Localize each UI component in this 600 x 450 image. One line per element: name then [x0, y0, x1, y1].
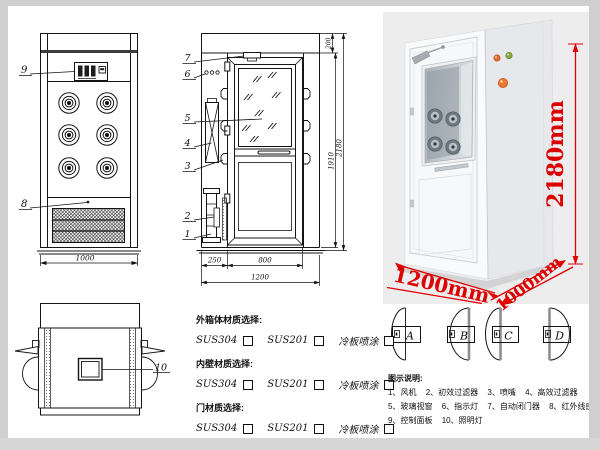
callout-6: 6	[185, 69, 191, 80]
chamber-body	[39, 328, 142, 408]
legend-line-1: 1、风机 2、初效过滤器 3、喷嘴 4、高效过滤器	[388, 386, 596, 400]
photo-dim-height: 2180mm	[543, 100, 569, 208]
door-config-c	[486, 308, 519, 360]
checkbox-inner-sus304[interactable]	[243, 380, 253, 390]
page-frame-right	[589, 0, 600, 450]
callout-8: 8	[21, 199, 27, 210]
material-group-label-inner: 内壁材质选择:	[196, 357, 384, 370]
fan-unit	[203, 189, 221, 243]
indicator-light-green	[506, 52, 512, 58]
emergency-button	[498, 78, 507, 87]
legend-item: 10、照明灯	[442, 416, 483, 425]
page-frame-left	[0, 0, 8, 450]
material-option-label: 冷板喷涂	[338, 377, 378, 392]
material-options-door: SUS304 SUS201 冷板喷涂	[196, 421, 384, 436]
callout-1: 1	[185, 229, 191, 240]
checkbox-inner-sus201[interactable]	[314, 380, 324, 390]
material-selection: 外箱体材质选择: SUS304 SUS201 冷板喷涂 内壁材质选择: SUS3…	[196, 313, 384, 445]
top-view-drawing: 10	[15, 293, 190, 443]
nozzle-circles	[59, 93, 117, 178]
callout-3: 3	[185, 161, 191, 172]
door-config-label-d: D	[554, 330, 564, 343]
top-trim-band	[41, 50, 137, 53]
product-photo: 2180mm 1200mm 1000mm	[383, 12, 593, 304]
material-option-label: SUS201	[267, 335, 308, 346]
material-group-label-outer: 外箱体材质选择:	[196, 313, 384, 326]
door-config-diagrams: A B C D	[385, 302, 585, 370]
legend-item: 7、自动闭门器	[487, 402, 539, 411]
glass-hatch-marks	[242, 72, 281, 142]
door-config-label-a: A	[405, 330, 414, 343]
checkbox-outer-sus304[interactable]	[243, 336, 253, 346]
callout-5: 5	[185, 113, 191, 124]
material-option-label: SUS304	[196, 423, 237, 434]
legend-item: 2、初效过滤器	[426, 388, 478, 397]
section-view-drawing: 200 1910 2180 250 800 1200 7 6 5 4 3 2 1	[180, 28, 352, 300]
material-option-label: SUS201	[267, 423, 308, 434]
dim-800: 800	[258, 257, 272, 265]
dim-1200: 1200	[251, 274, 269, 282]
door-glass	[239, 69, 292, 147]
legend-item: 1、风机	[388, 388, 416, 397]
door-handle	[258, 151, 290, 154]
checkbox-outer-coldplate[interactable]	[384, 336, 394, 346]
dim-200: 200	[326, 37, 333, 50]
material-option-label: SUS304	[196, 335, 237, 346]
dim-2180: 2180	[336, 139, 344, 158]
door-swing-left	[23, 357, 38, 390]
fan-housing	[41, 304, 140, 329]
legend-item: 5、玻璃视窗	[388, 402, 432, 411]
door	[225, 58, 303, 246]
door-leaf-left	[15, 347, 38, 355]
material-options-inner: SUS304 SUS201 冷板喷涂	[196, 377, 384, 392]
legend-item: 4、高效过滤器	[525, 388, 577, 397]
front-dim-1000: 1000	[75, 254, 94, 263]
callout-2: 2	[184, 211, 191, 222]
door-closer	[244, 53, 261, 59]
legend-item: 6、指示灯	[442, 402, 478, 411]
material-options-outer: SUS304 SUS201 冷板喷涂	[196, 333, 384, 348]
plenum-top	[202, 34, 320, 54]
checkbox-door-sus201[interactable]	[314, 424, 324, 434]
door-config-label-c: C	[504, 330, 513, 343]
indicator-light-orange	[494, 55, 500, 61]
material-option-label: SUS201	[267, 379, 308, 390]
dimension-lines	[202, 34, 348, 287]
page-frame-top	[0, 0, 600, 6]
checkbox-outer-sus201[interactable]	[314, 336, 324, 346]
page-frame-bottom	[0, 438, 600, 450]
legend: 图示说明: 1、风机 2、初效过滤器 3、喷嘴 4、高效过滤器 5、玻璃视窗 6…	[388, 372, 596, 428]
dim-1910: 1910	[328, 152, 336, 170]
dim-250: 250	[207, 257, 222, 265]
hepa-filter-box	[206, 99, 219, 163]
legend-line-2: 5、玻璃视窗 6、指示灯 7、自动闭门器 8、红外线感应器	[388, 400, 596, 414]
control-panel	[75, 63, 108, 81]
material-option-label: 冷板喷涂	[338, 421, 378, 436]
material-option-label: SUS304	[196, 379, 237, 390]
air-return-grille	[53, 209, 125, 243]
material-option-label: 冷板喷涂	[338, 333, 378, 348]
prefilter-strip	[223, 198, 227, 240]
hinge	[225, 126, 230, 135]
legend-item: 3、喷嘴	[487, 388, 515, 397]
legend-title: 图示说明:	[388, 372, 596, 386]
material-group-label-door: 门材质选择:	[196, 401, 384, 414]
callout-9: 9	[21, 65, 28, 76]
legend-line-3: 9、控制面板 10、照明灯	[388, 414, 596, 428]
door-config-label-b: B	[459, 330, 468, 343]
callout-7: 7	[185, 53, 192, 64]
door-leaf-right	[142, 347, 165, 355]
checkbox-door-sus304[interactable]	[243, 424, 253, 434]
indicator-lights	[205, 71, 219, 74]
hinge	[225, 62, 230, 71]
legend-item: 9、控制面板	[388, 416, 432, 425]
front-view-drawing: 1000 9 8	[15, 8, 190, 273]
callout-4: 4	[184, 138, 191, 149]
callout-10: 10	[155, 363, 167, 374]
